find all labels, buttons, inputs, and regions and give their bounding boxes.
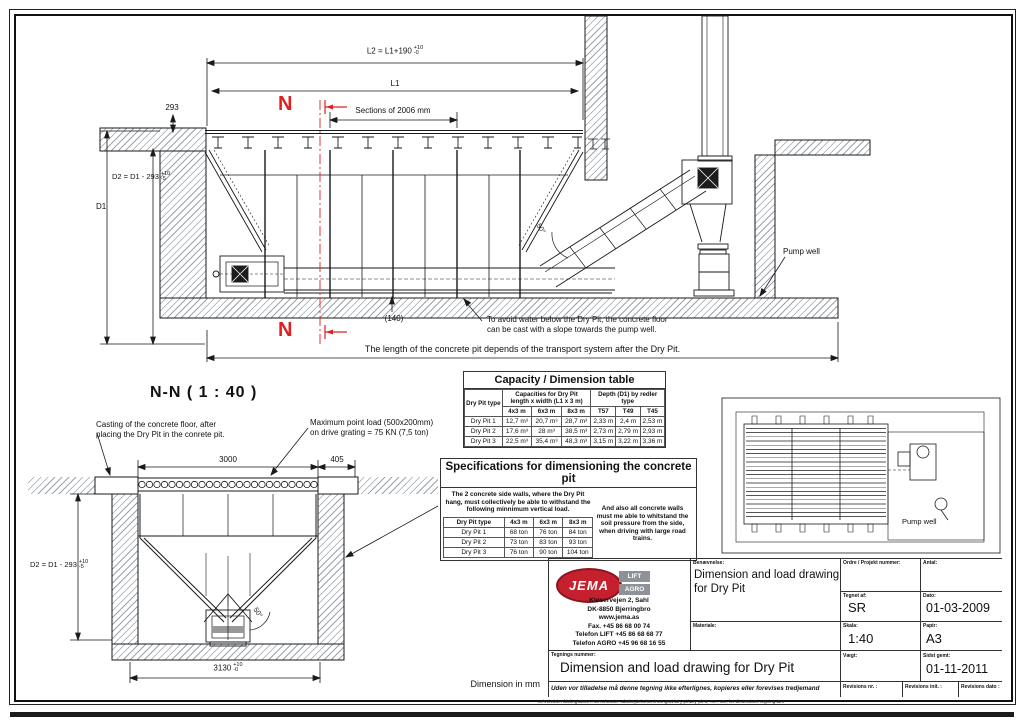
bottom-scan-bar bbox=[10, 712, 1014, 717]
dim-l2: L2 = L1+190+10-0 bbox=[330, 46, 460, 56]
value-tegnet-af: SR bbox=[848, 600, 866, 615]
dim-d2-section: D2 = D1 - 293+10-5 bbox=[30, 560, 88, 570]
label-revisions-nr: Revisions nr. : bbox=[843, 684, 877, 690]
note-casting-line1: Casting of the concrete floor, after bbox=[96, 420, 216, 430]
label-ordre: Ordre / Projekt nummer: bbox=[843, 560, 901, 566]
pump-well-label-side: Pump well bbox=[783, 247, 820, 257]
dim-293: 293 bbox=[157, 103, 187, 113]
grating-beams bbox=[205, 131, 610, 150]
redler-conveyor bbox=[213, 256, 615, 293]
table-row: Dry Pit 273 ton83 ton93 ton bbox=[444, 537, 593, 547]
label-vaegt: Vægt: bbox=[843, 653, 857, 659]
value-dato: 01-03-2009 bbox=[926, 601, 990, 615]
label-tegnet-af: Tegnet af: bbox=[843, 593, 867, 599]
dim-d1: D1 bbox=[96, 202, 106, 212]
capacity-group-depth: Depth (D1) by redlertype bbox=[591, 390, 665, 407]
dim-405: 405 bbox=[322, 455, 352, 465]
dim-l1: L1 bbox=[380, 79, 410, 89]
label-revisions-init: Revisions init. : bbox=[905, 684, 942, 690]
label-revisions-dato: Revisions dato : bbox=[961, 684, 1000, 690]
label-sidst-gemt: Sidst gemt: bbox=[923, 653, 950, 659]
section-title: N-N ( 1 : 40 ) bbox=[150, 388, 257, 398]
section-marker-n-bottom: N bbox=[278, 320, 292, 340]
capacity-table-title: Capacity / Dimension table bbox=[464, 372, 665, 389]
section-grating-circles bbox=[139, 481, 317, 487]
capacity-dimension-table: Capacity / Dimension table Dry Pit type … bbox=[463, 371, 666, 448]
note-pit-length: The length of the concrete pit depends o… bbox=[207, 344, 838, 354]
spec-table-title: Specifications for dimensioning the conc… bbox=[441, 459, 696, 488]
dimension-unit-note: Dimension in mm bbox=[455, 679, 540, 689]
table-row: Dry Pit 376 ton90 ton104 ton bbox=[444, 547, 593, 557]
label-materiale: Materiale: bbox=[693, 623, 716, 629]
logo-agro-badge: AGRO bbox=[619, 584, 650, 595]
label-skala: Skala: bbox=[843, 623, 858, 629]
copyright-note: Uden vor tilladelse må denne tegning ikk… bbox=[551, 685, 819, 692]
dim-140: (140) bbox=[377, 314, 411, 324]
value-benaevnelse: Dimension and load drawingfor Dry Pit bbox=[694, 568, 839, 596]
sections-note: Sections of 2006 mm bbox=[338, 106, 448, 116]
drawing-linework bbox=[0, 0, 1024, 724]
label-dato: Dato: bbox=[923, 593, 936, 599]
spec-note-right: And also all concrete walls must me able… bbox=[593, 505, 692, 543]
table-row: Dry Pit 322,5 m³35,4 m³48,3 m³3,15 m3,22… bbox=[465, 437, 665, 447]
table-row: Dry Pit 217,6 m³28 m³38,5 m³2,73 m2,79 m… bbox=[465, 427, 665, 437]
plan-view-structure bbox=[722, 398, 1000, 553]
pit-body bbox=[205, 150, 583, 298]
section-redler bbox=[204, 594, 270, 646]
spec-note-left: The 2 concrete side walls, where the Dry… bbox=[443, 490, 593, 517]
dim-d2: D2 = D1 - 293+10-5 bbox=[112, 172, 170, 182]
capacity-col-type: Dry Pit type bbox=[465, 390, 503, 417]
pump-unit bbox=[694, 254, 734, 296]
value-tegnings-nummer: Dimension and load drawing for Dry Pit bbox=[560, 660, 794, 675]
side-view-structure bbox=[100, 16, 870, 318]
file-path: M:\Teknisk Afdeling\JEMA AGRO\Under udar… bbox=[538, 699, 784, 704]
section-marker-n-top: N bbox=[278, 94, 292, 114]
note-water-line1: To avoid water below the Dry Pit, the co… bbox=[487, 315, 668, 325]
capacity-group-capacity: Capacities for Dry Pitlength x width (L1… bbox=[502, 390, 591, 407]
specifications-table: Specifications for dimensioning the conc… bbox=[440, 458, 697, 561]
section-dimensions bbox=[70, 428, 438, 683]
spec-header-row: Dry Pit type 4x3 m 6x3 m 8x3 m bbox=[444, 517, 593, 527]
value-papir: A3 bbox=[926, 631, 942, 646]
label-papir: Papir: bbox=[923, 623, 937, 629]
dim-3130: 3130+10-0 bbox=[198, 663, 258, 673]
discharge-chute bbox=[698, 16, 732, 161]
table-row: Dry Pit 112,7 m³20,7 m³28,7 m³2,33 m2,4 … bbox=[465, 417, 665, 427]
side-view-dimensions bbox=[100, 58, 838, 362]
logo-lift-badge: LIFT bbox=[619, 571, 650, 582]
company-address: Kløservejen 2, Sahl DK-8850 Bjerringbro … bbox=[548, 597, 690, 649]
pump-well-label-plan: Pump well bbox=[902, 517, 937, 527]
dim-3000: 3000 bbox=[208, 455, 248, 465]
value-sidst-gemt: 01-11-2011 bbox=[926, 662, 988, 676]
note-load-line1: Maximum point load (500x200mm) bbox=[310, 418, 433, 428]
label-antal: Antal: bbox=[923, 560, 937, 566]
incline-conveyor bbox=[540, 170, 706, 287]
label-benaevnelse: Benævnelse: bbox=[693, 560, 724, 566]
value-skala: 1:40 bbox=[848, 631, 873, 646]
label-tegnings-nummer: Tegnings nummer: bbox=[551, 652, 596, 658]
note-load-line2: on drive grating = 75 KN (7,5 ton) bbox=[310, 428, 429, 438]
drawing-sheet: L2 = L1+190+10-0 L1 293 Sections of 2006… bbox=[0, 0, 1024, 724]
head-drive-unit bbox=[682, 160, 732, 254]
note-casting-line2: placing the Dry Pit in the conrete pit. bbox=[96, 430, 225, 440]
note-water-line2: can be cast with a slope towards the pum… bbox=[487, 325, 656, 335]
table-row: Dry Pit 168 ton76 ton84 ton bbox=[444, 527, 593, 537]
